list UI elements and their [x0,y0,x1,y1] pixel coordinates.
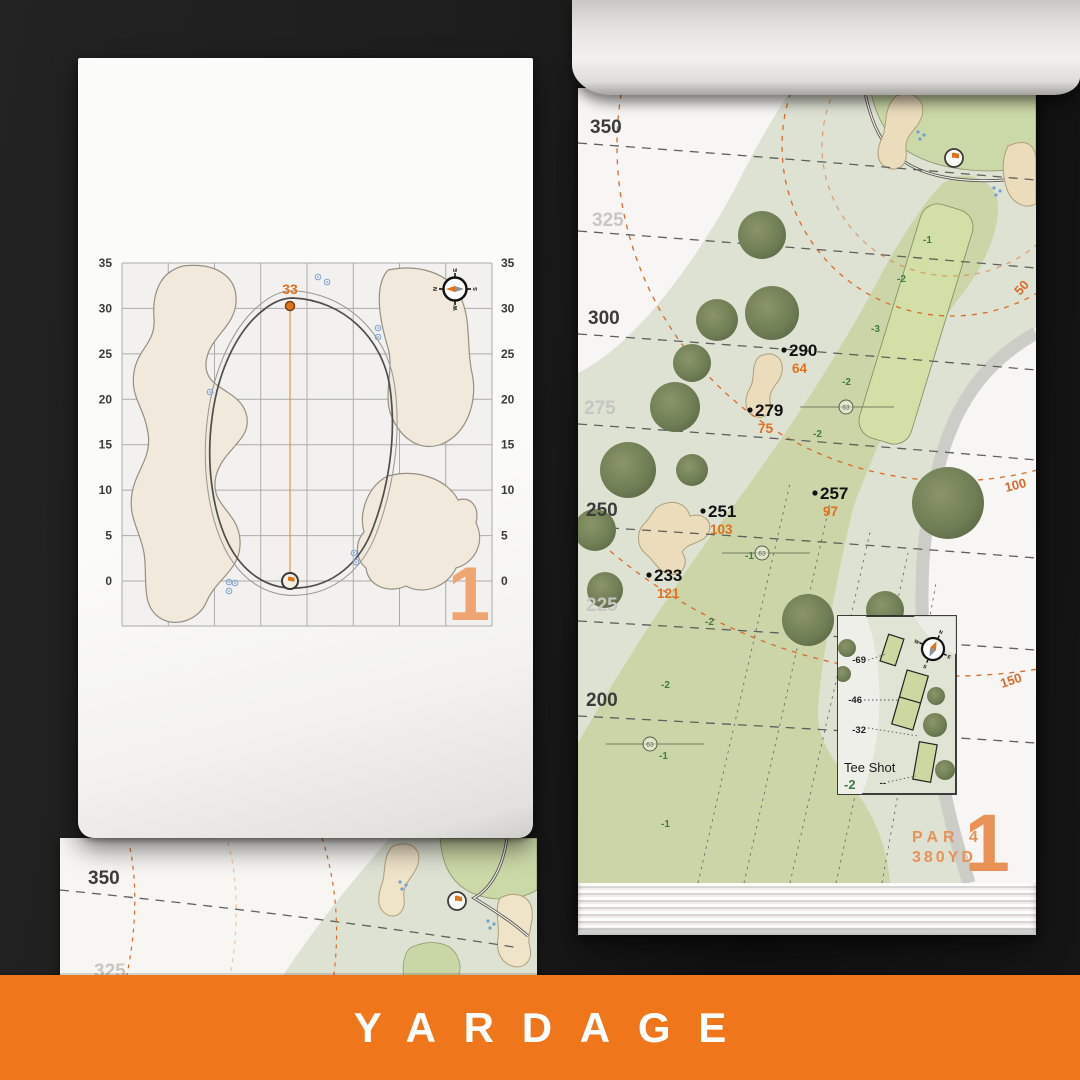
yardage-banner: YARDAGE [0,975,1080,1080]
tee-shot-elevation: -2 [844,777,856,792]
svg-text:-2: -2 [842,377,851,388]
carry-distance: 251 [708,502,736,521]
flag-marker [945,149,963,167]
green-detail-map: 33 35 30 25 20 [88,248,523,648]
svg-text:0: 0 [501,574,508,588]
remaining-distance: 97 [823,504,838,519]
svg-text:20: 20 [501,392,515,406]
hole-map-page-under: 350 325 [60,838,537,988]
pin-dot [286,302,295,311]
svg-text:-69: -69 [852,655,866,666]
svg-text:--: -- [880,778,886,789]
hole-number: 1 [964,798,1010,883]
svg-text:225: 225 [586,595,618,616]
tee-shot-inset: -69 -46 -32 -- Tee Shot -2 [835,616,960,794]
hole-map-page: 63 63 63 -1 -2 -3 -2 -2 -1 -2 -2 -1 -1 [578,88,1036,935]
svg-text:-3: -3 [871,324,880,335]
svg-text:-1: -1 [923,235,932,246]
svg-text:-1: -1 [661,819,670,830]
carry-distance: 279 [755,401,783,420]
compass-e: E [453,268,459,272]
svg-text:-1: -1 [745,551,754,562]
hole-map: 63 63 63 -1 -2 -3 -2 -2 -1 -2 -2 -1 -1 [578,88,1036,883]
svg-text:30: 30 [99,301,113,315]
yardage-book-mockup: 350 325 [0,0,1080,1080]
svg-text:-46: -46 [848,695,862,706]
svg-text:-2: -2 [897,274,906,285]
green-front-marker [282,573,298,589]
svg-text:63: 63 [646,742,654,749]
hole-number: 1 [448,552,490,637]
svg-text:35: 35 [99,256,113,270]
green-detail-page: 33 35 30 25 20 [78,58,533,838]
svg-text:250: 250 [586,500,618,521]
banner-title: YARDAGE [354,1004,754,1052]
carry-distance: 233 [654,566,682,585]
svg-text:300: 300 [588,308,620,329]
svg-text:10: 10 [501,483,515,497]
svg-text:35: 35 [501,256,515,270]
compass-s: S [473,287,479,291]
svg-text:25: 25 [99,347,113,361]
flag-marker [448,892,466,910]
remaining-distance: 121 [657,586,680,601]
tee-shot-title: Tee Shot [844,760,896,775]
svg-text:20: 20 [99,392,113,406]
svg-text:5: 5 [501,529,508,543]
svg-text:-2: -2 [813,429,822,440]
remaining-distance: 75 [758,421,774,436]
carry-distance: 290 [789,341,817,360]
svg-text:30: 30 [501,301,515,315]
bunker [497,894,532,966]
pin-distance-label: 33 [282,281,298,297]
svg-text:275: 275 [584,398,616,419]
svg-text:10: 10 [99,483,113,497]
svg-text:325: 325 [592,210,624,231]
svg-text:25: 25 [501,347,515,361]
svg-text:63: 63 [842,405,850,412]
svg-text:63: 63 [758,551,766,558]
svg-text:-2: -2 [705,617,714,628]
yardage-band-label: 350 [88,868,120,889]
svg-text:5: 5 [105,529,112,543]
carry-distance: 257 [820,484,848,503]
svg-text:0: 0 [105,574,112,588]
remaining-distance: 64 [792,361,808,376]
svg-text:200: 200 [586,690,618,711]
remaining-distance: 103 [710,522,733,537]
under-page-map: 350 325 [60,838,537,988]
compass-w: W [453,305,459,311]
svg-text:-2: -2 [661,680,670,691]
svg-text:350: 350 [590,117,622,138]
svg-text:-32: -32 [852,725,866,736]
flipped-page-curl [572,0,1080,95]
svg-text:15: 15 [99,438,113,452]
booklet-binding-edge [578,883,1036,935]
svg-text:-1: -1 [659,751,668,762]
compass-n: N [433,287,439,291]
svg-text:15: 15 [501,438,515,452]
